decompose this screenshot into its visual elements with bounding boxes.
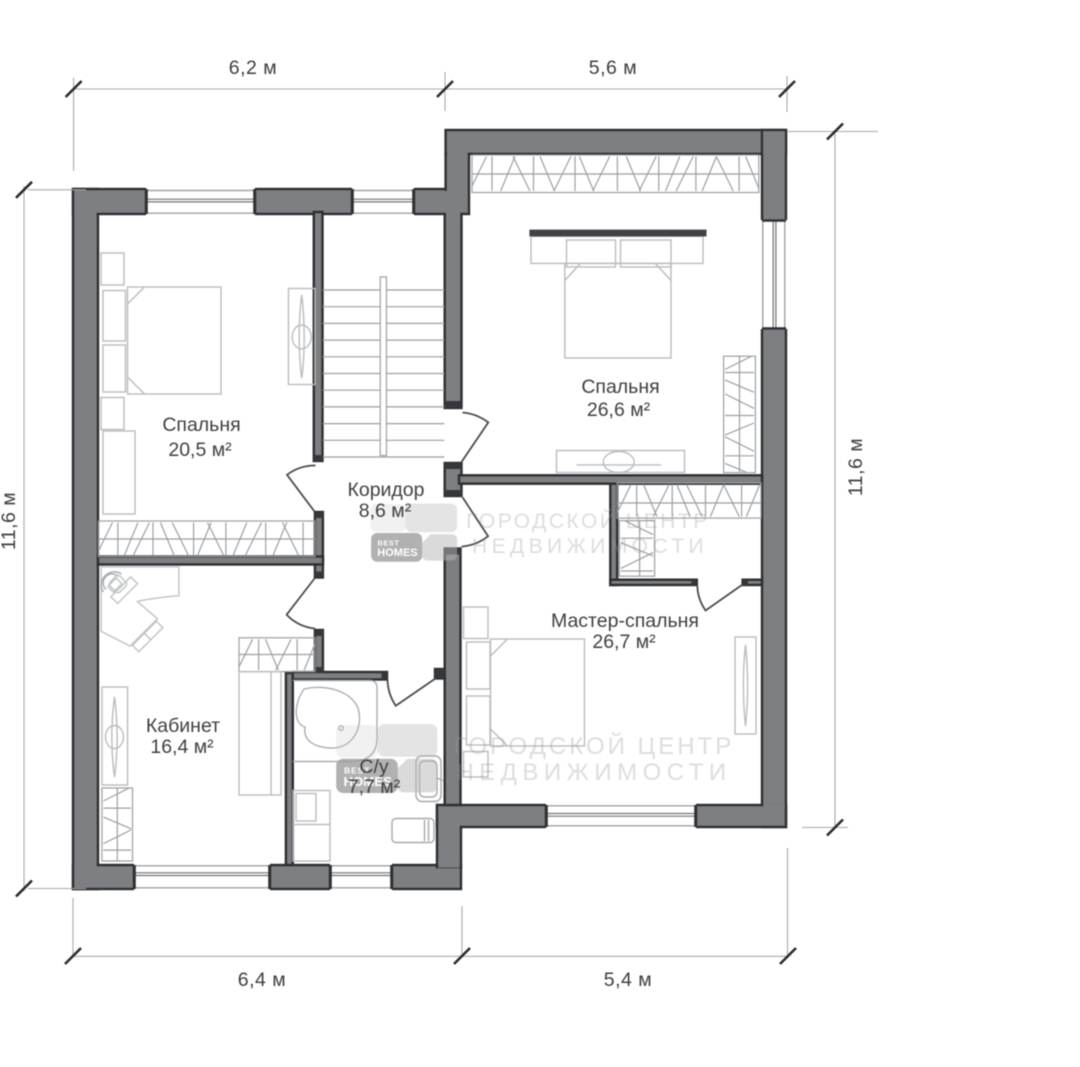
svg-text:5,6 м: 5,6 м [589, 57, 637, 79]
svg-text:6,2 м: 6,2 м [229, 57, 277, 79]
svg-text:26,6 м²: 26,6 м² [587, 399, 651, 421]
svg-text:6,4 м: 6,4 м [238, 969, 286, 991]
svg-text:С/у: С/у [359, 756, 389, 778]
svg-text:ГОРОДСКОЙ ЦЕНТР: ГОРОДСКОЙ ЦЕНТР [466, 509, 710, 533]
svg-text:HOMES: HOMES [377, 547, 417, 559]
svg-text:20,5 м²: 20,5 м² [168, 439, 232, 461]
svg-text:5,4 м: 5,4 м [604, 969, 652, 991]
svg-text:НЕДВИЖИМОСТИ: НЕДВИЖИМОСТИ [472, 535, 708, 558]
svg-text:16,4 м²: 16,4 м² [150, 736, 214, 758]
svg-text:Спальня: Спальня [162, 414, 240, 436]
svg-text:Спальня: Спальня [581, 376, 659, 398]
svg-text:НЕДВИЖИМОСТИ: НЕДВИЖИМОСТИ [456, 759, 731, 786]
svg-text:11,6 м: 11,6 м [0, 492, 20, 550]
svg-text:Кабинет: Кабинет [146, 715, 220, 737]
svg-text:11,6 м: 11,6 м [845, 438, 867, 496]
svg-text:Мастер-спальня: Мастер-спальня [551, 610, 699, 632]
svg-text:26,7 м²: 26,7 м² [592, 631, 656, 653]
svg-text:Коридор: Коридор [347, 479, 424, 501]
svg-text:7,7 м²: 7,7 м² [348, 776, 401, 798]
svg-text:8,6 м²: 8,6 м² [359, 500, 412, 522]
svg-text:ГОРОДСКОЙ ЦЕНТР: ГОРОДСКОЙ ЦЕНТР [454, 732, 735, 760]
